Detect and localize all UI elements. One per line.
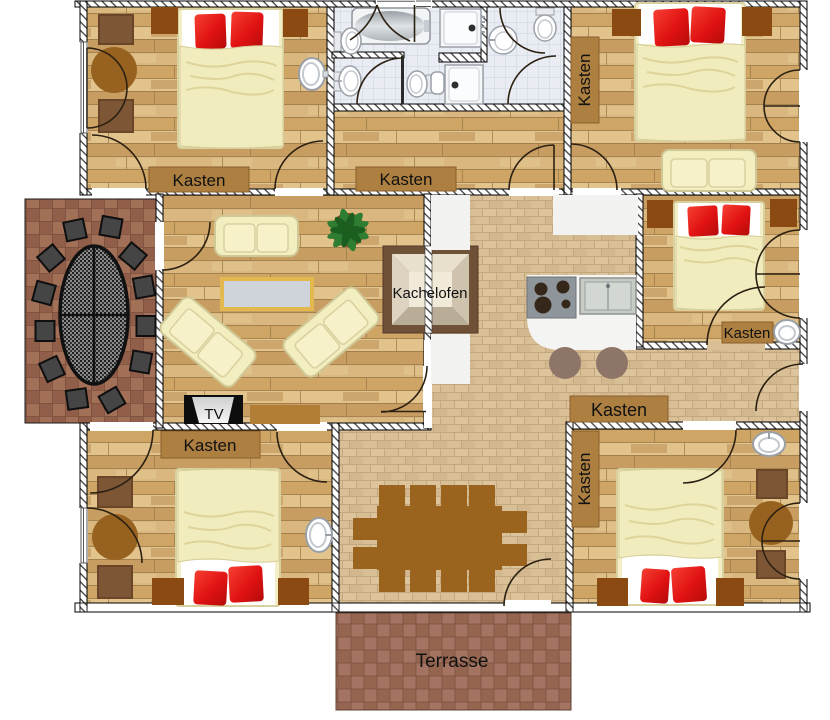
svg-text:Terrasse: Terrasse xyxy=(416,651,489,672)
svg-text:Kasten: Kasten xyxy=(575,54,594,107)
svg-text:Kachelofen: Kachelofen xyxy=(392,285,467,302)
svg-text:Kasten: Kasten xyxy=(173,171,226,190)
svg-text:Kasten: Kasten xyxy=(575,453,594,506)
svg-text:Kasten: Kasten xyxy=(724,325,771,342)
svg-text:Kasten: Kasten xyxy=(591,400,647,420)
svg-text:Kasten: Kasten xyxy=(184,436,237,455)
svg-text:TV: TV xyxy=(204,406,223,423)
svg-text:Kasten: Kasten xyxy=(380,170,433,189)
